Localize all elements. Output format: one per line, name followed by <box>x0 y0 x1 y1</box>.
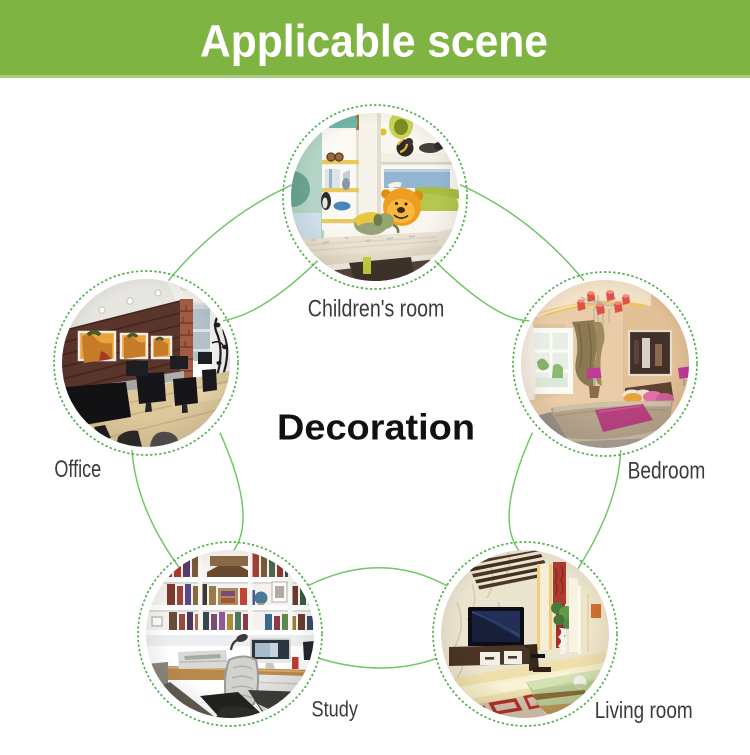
svg-text:Bedroom: Bedroom <box>628 458 706 485</box>
svg-text:Applicable scene: Applicable scene <box>200 16 548 67</box>
svg-text:Living room: Living room <box>595 697 693 723</box>
svg-text:Office: Office <box>54 456 101 483</box>
svg-text:Children's room: Children's room <box>308 296 445 323</box>
svg-text:Study: Study <box>312 697 358 722</box>
svg-text:Decoration: Decoration <box>277 407 475 448</box>
